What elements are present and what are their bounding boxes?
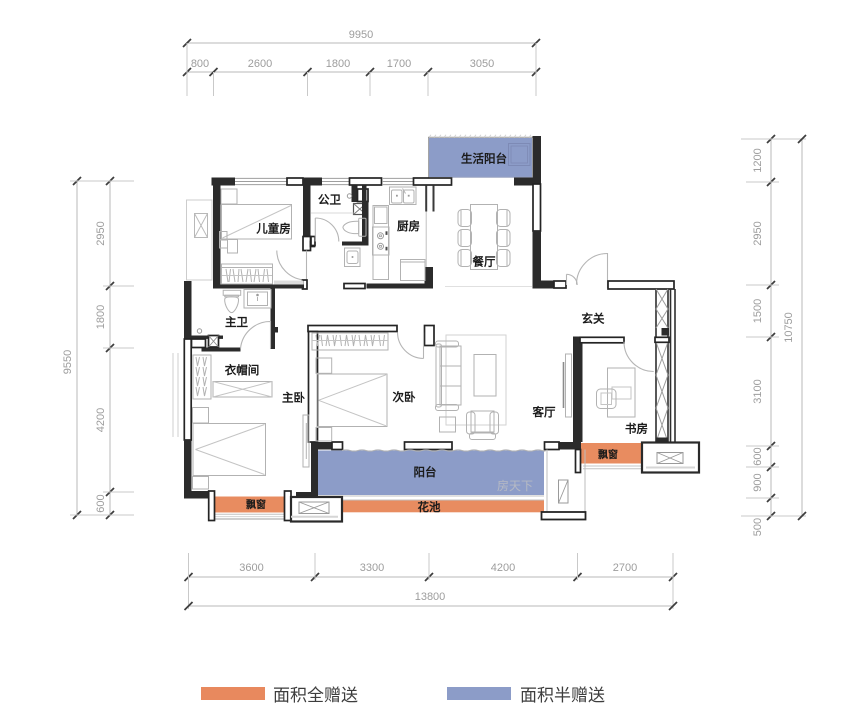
svg-text:房天下: 房天下 bbox=[497, 478, 533, 493]
svg-text:衣帽间: 衣帽间 bbox=[225, 363, 260, 377]
svg-text:阳台: 阳台 bbox=[414, 465, 437, 479]
svg-text:1700: 1700 bbox=[387, 58, 411, 70]
svg-text:2950: 2950 bbox=[752, 221, 764, 245]
svg-text:主卫: 主卫 bbox=[225, 315, 248, 329]
svg-text:3100: 3100 bbox=[752, 379, 764, 403]
svg-text:2700: 2700 bbox=[613, 562, 637, 574]
svg-text:飘窗: 飘窗 bbox=[598, 448, 618, 461]
svg-text:600: 600 bbox=[752, 447, 764, 465]
svg-text:面积半赠送: 面积半赠送 bbox=[520, 686, 605, 705]
svg-text:9550: 9550 bbox=[62, 350, 74, 374]
svg-text:主卧: 主卧 bbox=[282, 391, 305, 405]
svg-text:儿童房: 儿童房 bbox=[255, 222, 291, 236]
svg-text:面积全赠送: 面积全赠送 bbox=[273, 686, 358, 705]
svg-text:10750: 10750 bbox=[783, 312, 795, 343]
svg-text:书房: 书房 bbox=[625, 422, 648, 436]
svg-text:4200: 4200 bbox=[491, 562, 515, 574]
svg-text:1800: 1800 bbox=[95, 305, 107, 329]
svg-text:800: 800 bbox=[191, 58, 209, 70]
svg-text:飘窗: 飘窗 bbox=[246, 498, 266, 511]
svg-text:9950: 9950 bbox=[349, 29, 373, 41]
svg-text:4200: 4200 bbox=[95, 408, 107, 432]
svg-text:500: 500 bbox=[752, 518, 764, 536]
svg-text:厨房: 厨房 bbox=[397, 219, 420, 233]
svg-text:1500: 1500 bbox=[752, 299, 764, 323]
svg-text:13800: 13800 bbox=[415, 591, 446, 603]
svg-text:600: 600 bbox=[95, 494, 107, 512]
svg-text:生活阳台: 生活阳台 bbox=[461, 152, 507, 166]
svg-text:3300: 3300 bbox=[360, 562, 384, 574]
svg-text:次卧: 次卧 bbox=[393, 390, 416, 404]
svg-text:3050: 3050 bbox=[470, 58, 494, 70]
svg-text:花池: 花池 bbox=[418, 500, 441, 514]
svg-text:玄关: 玄关 bbox=[582, 312, 605, 326]
svg-text:餐厅: 餐厅 bbox=[472, 255, 496, 269]
svg-text:900: 900 bbox=[752, 473, 764, 491]
svg-text:3600: 3600 bbox=[239, 562, 263, 574]
svg-text:公卫: 公卫 bbox=[318, 194, 341, 207]
svg-text:客厅: 客厅 bbox=[532, 405, 556, 419]
svg-text:1200: 1200 bbox=[752, 148, 764, 172]
svg-text:1800: 1800 bbox=[326, 58, 350, 70]
svg-text:2600: 2600 bbox=[248, 58, 272, 70]
svg-text:2950: 2950 bbox=[95, 221, 107, 245]
